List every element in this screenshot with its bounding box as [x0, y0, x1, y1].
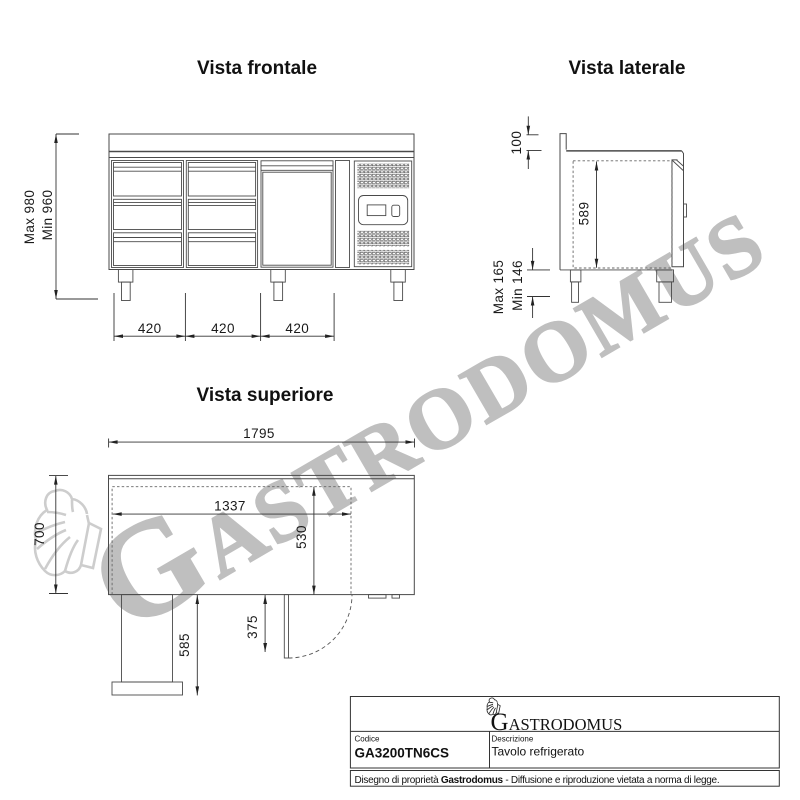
- svg-text:585: 585: [177, 633, 192, 657]
- svg-text:Min 960: Min 960: [40, 190, 55, 241]
- svg-text:589: 589: [577, 202, 592, 226]
- svg-text:420: 420: [211, 321, 235, 336]
- svg-text:Vista superiore: Vista superiore: [197, 385, 334, 406]
- svg-text:Descrizione: Descrizione: [492, 735, 534, 744]
- svg-text:1795: 1795: [243, 426, 275, 441]
- svg-text:Vista frontale: Vista frontale: [197, 58, 317, 79]
- svg-text:Vista laterale: Vista laterale: [569, 58, 686, 79]
- svg-text:420: 420: [285, 321, 309, 336]
- svg-text:Max 165: Max 165: [491, 260, 506, 315]
- svg-text:GA3200TN6CS: GA3200TN6CS: [355, 746, 450, 761]
- svg-text:Codice: Codice: [355, 735, 380, 744]
- svg-text:375: 375: [245, 615, 260, 639]
- svg-text:420: 420: [138, 321, 162, 336]
- svg-text:Disegno di proprietà Gastrodom: Disegno di proprietà Gastrodomus - Diffu…: [355, 775, 720, 786]
- svg-text:Max 980: Max 980: [22, 190, 37, 245]
- svg-text:Min 146: Min 146: [510, 260, 525, 311]
- svg-text:1337: 1337: [214, 499, 246, 514]
- svg-text:530: 530: [294, 525, 309, 549]
- svg-text:Tavolo refrigerato: Tavolo refrigerato: [492, 745, 585, 759]
- svg-text:100: 100: [509, 131, 524, 155]
- svg-text:700: 700: [32, 522, 47, 546]
